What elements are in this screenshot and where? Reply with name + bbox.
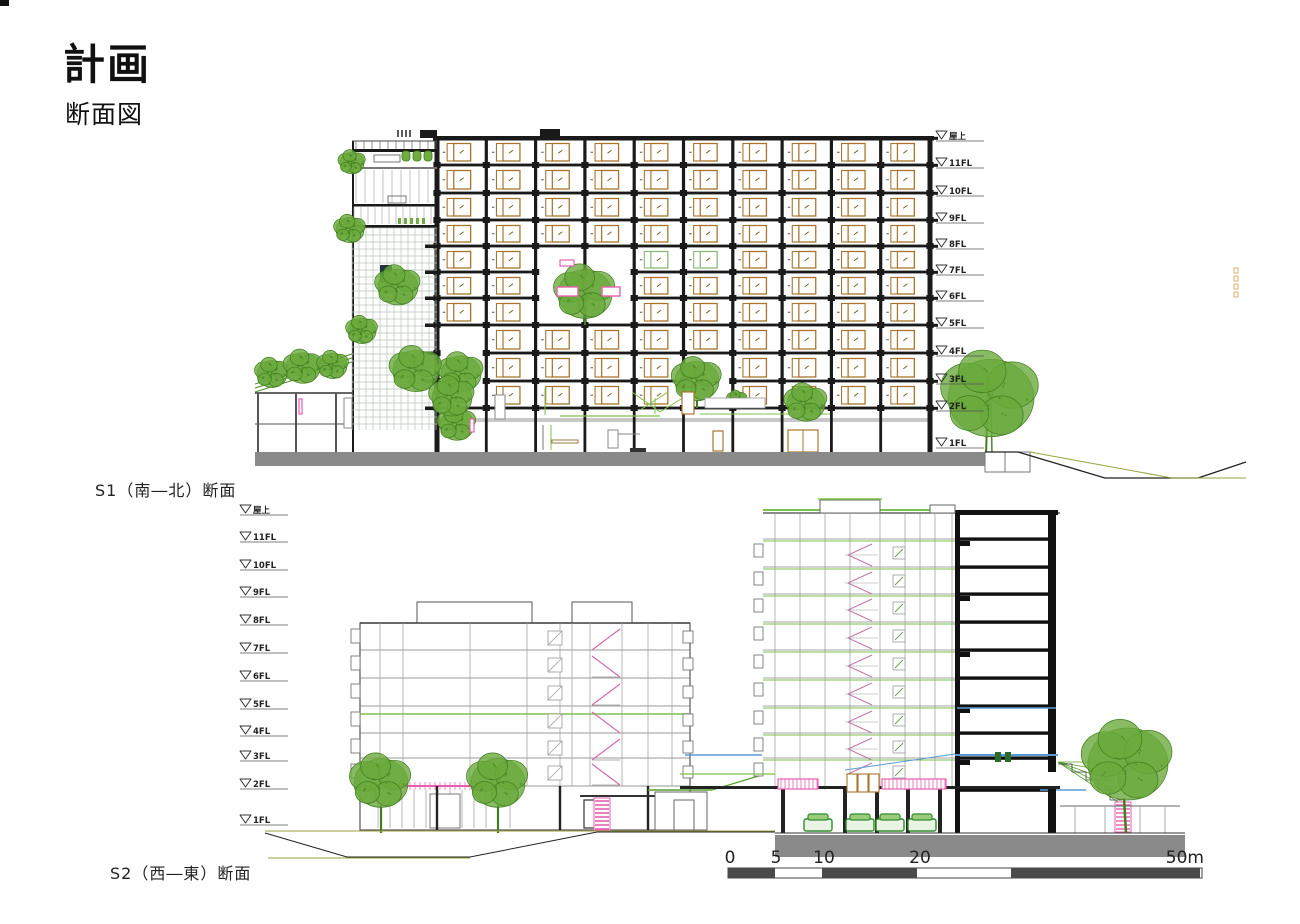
floor-label: 8FL	[949, 240, 967, 250]
floor-label: 8FL	[253, 616, 271, 626]
floor-label: 5FL	[253, 700, 271, 710]
tree-icon	[1081, 719, 1172, 800]
door-unit	[492, 359, 520, 378]
door-unit	[788, 331, 816, 350]
door-unit	[738, 252, 766, 269]
floor-level-marker: 6FL	[240, 671, 288, 682]
door-unit	[886, 387, 914, 405]
floor-label: 10FL	[949, 187, 973, 197]
tree-icon	[317, 350, 349, 378]
floor-level-marker: 10FL	[240, 560, 288, 571]
floor-level-marker: 3FL	[240, 751, 288, 762]
door-unit	[591, 171, 619, 190]
door-unit	[640, 252, 668, 269]
door-unit	[788, 144, 816, 162]
door-unit	[640, 199, 668, 217]
floor-level-marker: 8FL	[936, 239, 984, 250]
section-drawings-canvas: 屋上11FL10FL9FL8FL7FL6FL5FL4FL3FL2FL1FL屋上1…	[0, 0, 1300, 924]
door-unit	[640, 304, 668, 322]
door-unit	[837, 304, 865, 322]
tree-icon	[283, 349, 322, 383]
floor-label: 屋上	[253, 505, 271, 516]
door-unit	[689, 226, 717, 243]
door-unit	[738, 144, 766, 162]
door-unit	[886, 199, 914, 217]
door-unit	[492, 331, 520, 350]
door-unit	[492, 144, 520, 162]
floor-label: 9FL	[949, 214, 967, 224]
floor-label: 1FL	[253, 816, 271, 826]
floor-label: 6FL	[253, 672, 271, 682]
door-unit	[788, 304, 816, 322]
door-unit	[738, 171, 766, 190]
floor-level-marker: 5FL	[936, 318, 984, 329]
door-unit	[541, 359, 569, 378]
door-unit	[837, 252, 865, 269]
door-unit	[886, 359, 914, 378]
door-unit	[837, 171, 865, 190]
door-unit	[640, 359, 668, 378]
door-unit	[738, 199, 766, 217]
door-unit	[591, 199, 619, 217]
floor-label: 4FL	[949, 347, 967, 357]
floor-level-marker: 8FL	[240, 615, 288, 626]
door-unit	[837, 359, 865, 378]
floor-label: 5FL	[949, 319, 967, 329]
tree-icon	[941, 350, 1039, 437]
door-unit	[788, 226, 816, 243]
door-unit	[541, 199, 569, 217]
door-unit	[689, 252, 717, 269]
pink-stair	[594, 798, 610, 830]
scale-label: 5	[771, 848, 782, 868]
floor-label: 2FL	[253, 780, 271, 790]
floor-label: 9FL	[253, 588, 271, 598]
floor-label: 3FL	[949, 375, 967, 385]
scale-label: 10	[813, 848, 835, 868]
door-unit	[541, 331, 569, 350]
door-unit	[443, 278, 471, 295]
door-unit	[640, 144, 668, 162]
floor-level-marker: 1FL	[936, 438, 984, 449]
door-unit	[640, 171, 668, 190]
door-unit	[591, 144, 619, 162]
door-unit	[492, 304, 520, 322]
door-unit	[492, 252, 520, 269]
plan-section-page: 計画 断面図 S1（南―北）断面 S2（西―東）断面 屋上11FL10FL9FL…	[0, 0, 1300, 924]
door-unit	[689, 144, 717, 162]
s1-ground	[255, 452, 1246, 478]
door-unit	[886, 304, 914, 322]
door-unit	[640, 331, 668, 350]
floor-level-marker: 7FL	[240, 643, 288, 654]
tree-icon	[338, 150, 365, 174]
s2-floor-markers: 屋上11FL10FL9FL8FL7FL6FL5FL4FL3FL2FL1FL	[240, 505, 288, 826]
floor-level-marker: 4FL	[240, 726, 288, 737]
scale-label: 20	[909, 848, 931, 868]
scale-label: 0	[725, 848, 736, 868]
door-unit	[591, 387, 619, 405]
floor-label: 7FL	[949, 266, 967, 276]
door-unit	[591, 331, 619, 350]
floor-level-marker: 11FL	[240, 532, 288, 543]
floor-label: 屋上	[949, 131, 967, 142]
door-unit	[591, 359, 619, 378]
door-unit	[541, 226, 569, 243]
door-unit	[541, 144, 569, 162]
door-unit	[738, 359, 766, 378]
door-unit	[788, 252, 816, 269]
door-unit	[788, 199, 816, 217]
door-unit	[886, 144, 914, 162]
car-icon	[876, 814, 904, 831]
s1-pergola	[254, 349, 352, 452]
floor-label: 3FL	[253, 752, 271, 762]
floor-label: 1FL	[949, 439, 967, 449]
door-unit	[640, 226, 668, 243]
door-unit	[689, 278, 717, 295]
door-unit	[886, 331, 914, 350]
floor-level-marker: 9FL	[240, 587, 288, 598]
floor-label: 7FL	[253, 644, 271, 654]
door-unit	[837, 199, 865, 217]
floor-label: 11FL	[949, 159, 973, 169]
door-unit	[443, 144, 471, 162]
door-unit	[837, 331, 865, 350]
door-unit	[738, 278, 766, 295]
door-unit	[886, 226, 914, 243]
door-unit	[788, 359, 816, 378]
door-unit	[837, 278, 865, 295]
door-unit	[788, 171, 816, 190]
tree-icon	[784, 383, 827, 421]
door-unit	[689, 331, 717, 350]
door-unit	[886, 278, 914, 295]
floor-label: 10FL	[253, 561, 277, 571]
tree-icon	[671, 356, 721, 400]
s2-drawing	[265, 499, 1185, 858]
floor-level-marker: 11FL	[936, 158, 984, 169]
floor-level-marker: 2FL	[240, 779, 288, 790]
door-unit	[788, 278, 816, 295]
floor-label: 4FL	[253, 727, 271, 737]
door-unit	[492, 199, 520, 217]
door-unit	[640, 278, 668, 295]
door-unit	[738, 304, 766, 322]
door-unit	[541, 171, 569, 190]
door-unit	[689, 199, 717, 217]
floor-level-marker: 9FL	[936, 213, 984, 224]
door-unit	[886, 252, 914, 269]
floor-label: 6FL	[949, 292, 967, 302]
door-unit	[443, 199, 471, 217]
tree-icon	[346, 315, 378, 343]
floor-level-marker: 10FL	[936, 186, 984, 197]
door-unit	[443, 304, 471, 322]
door-unit	[443, 226, 471, 243]
floor-level-marker: 6FL	[936, 291, 984, 302]
scale-label: 50m	[1166, 848, 1204, 868]
tree-icon	[334, 214, 366, 242]
right-edge-mark	[1234, 268, 1238, 297]
door-unit	[886, 171, 914, 190]
door-unit	[837, 387, 865, 405]
floor-level-marker: 5FL	[240, 699, 288, 710]
door-unit	[837, 226, 865, 243]
car-icon	[804, 814, 832, 831]
door-unit	[689, 171, 717, 190]
door-unit	[689, 304, 717, 322]
car-icon	[846, 814, 874, 831]
floor-label: 2FL	[949, 402, 967, 412]
door-unit	[837, 144, 865, 162]
floor-level-marker: 屋上	[936, 131, 984, 142]
door-unit	[443, 171, 471, 190]
floor-level-marker: 屋上	[240, 505, 288, 516]
s2-garage	[680, 786, 1060, 833]
door-unit	[591, 226, 619, 243]
door-unit	[738, 226, 766, 243]
door-unit	[492, 171, 520, 190]
floor-level-marker: 7FL	[936, 265, 984, 276]
door-unit	[492, 226, 520, 243]
door-unit	[738, 331, 766, 350]
door-unit	[492, 278, 520, 295]
corner-mark	[0, 0, 9, 6]
door-unit	[443, 252, 471, 269]
floor-level-marker: 1FL	[240, 815, 288, 826]
s1-drawing	[254, 129, 1246, 478]
car-icon	[908, 814, 936, 831]
floor-label: 11FL	[253, 533, 277, 543]
